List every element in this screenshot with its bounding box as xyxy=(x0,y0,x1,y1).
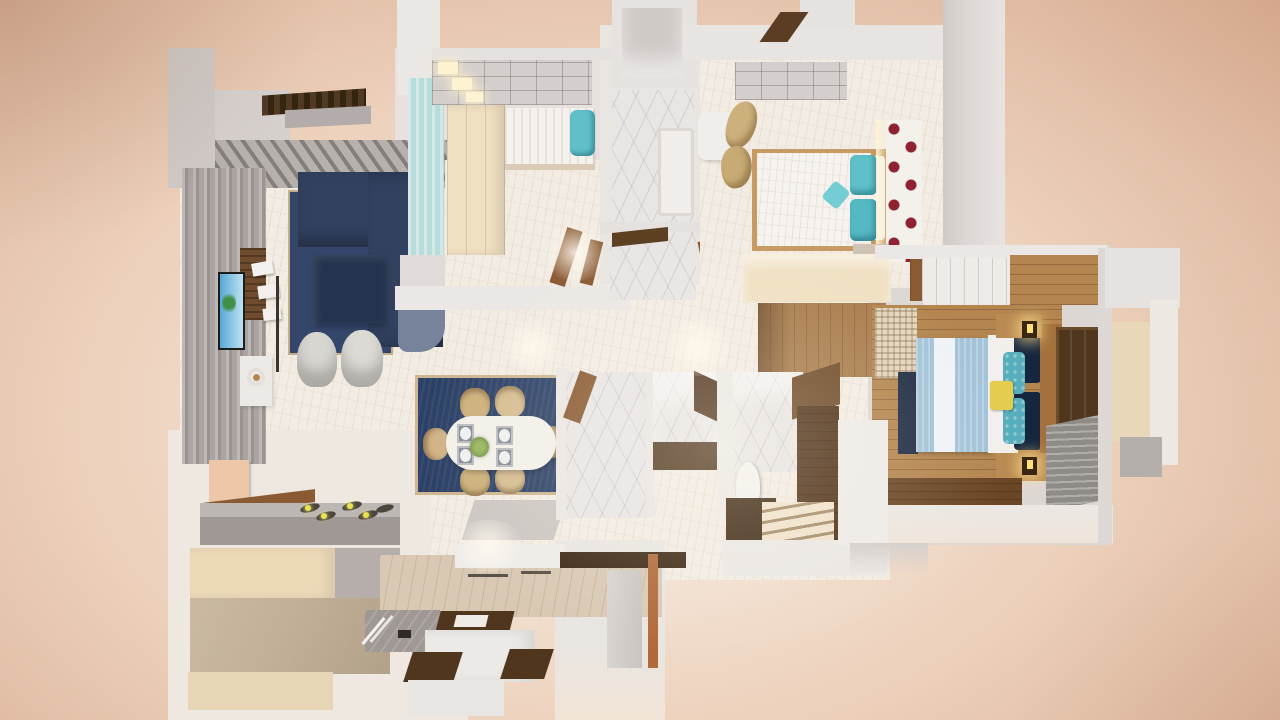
plate xyxy=(460,449,471,462)
orange-door-frame xyxy=(648,554,658,668)
plate xyxy=(499,451,510,464)
top-center-niche xyxy=(622,8,682,78)
bedroom-double-top-wall xyxy=(683,25,945,60)
gray-floor-wedge xyxy=(850,543,928,575)
teal-pillow xyxy=(850,155,877,195)
aqua-accent-wall xyxy=(408,78,444,258)
yellow-pillow xyxy=(990,381,1013,410)
bed-frame-edge xyxy=(505,164,595,170)
plate xyxy=(460,427,471,440)
burner-flame xyxy=(305,505,311,511)
cream-wardrobe xyxy=(743,254,891,302)
burner-flame xyxy=(321,513,327,519)
walnut-stool xyxy=(500,649,554,679)
sofa-ottoman xyxy=(313,255,383,323)
cream-wardrobe xyxy=(447,105,505,255)
centerpiece-plant xyxy=(470,437,489,457)
recessed-light xyxy=(438,62,458,74)
master-closet-floor xyxy=(1010,255,1105,305)
master-floor-dark-band xyxy=(870,478,1022,508)
tv-screen xyxy=(220,274,243,348)
polka-dot-accent-wall xyxy=(886,120,922,262)
tv-tree-image xyxy=(222,292,236,314)
tv xyxy=(218,272,245,350)
burner-flame xyxy=(363,512,369,518)
stairs xyxy=(762,502,834,542)
accent-chair xyxy=(341,330,383,387)
ceiling-light-pool xyxy=(540,225,610,281)
ceiling-light-pool xyxy=(500,322,564,372)
cream-plinth xyxy=(188,672,333,710)
woven-sliding-door xyxy=(875,308,917,378)
burner-flame xyxy=(347,503,353,509)
teal-pillow xyxy=(570,110,595,156)
entry-wall xyxy=(607,570,642,668)
hob-counter-front xyxy=(200,517,400,545)
island-top-gap xyxy=(454,615,489,627)
recessed-light xyxy=(466,92,483,102)
master-closet-front xyxy=(922,258,1010,305)
decor-bowl-center xyxy=(253,374,260,381)
recessed-light xyxy=(452,78,472,90)
accent-chair xyxy=(297,332,337,387)
stairs-right-wall xyxy=(838,420,888,546)
walnut-cabinet xyxy=(653,442,717,470)
cabinet-cream xyxy=(190,548,335,598)
walnut-shelf-bar xyxy=(560,552,686,568)
nightstand xyxy=(996,453,1046,481)
bedside-lamp xyxy=(1022,321,1037,338)
navy-bench xyxy=(898,372,918,454)
duvet-white-stripe xyxy=(934,338,955,452)
walnut-stool xyxy=(403,652,463,682)
floor-dash xyxy=(468,574,508,577)
floor-lamp-pole xyxy=(276,276,279,372)
ceiling-light-pool xyxy=(448,520,528,572)
master-bottom-wall xyxy=(868,505,1113,543)
ceiling-light-pool xyxy=(660,318,736,376)
top-wall-fragment xyxy=(800,0,855,28)
hallway-wood-shadow xyxy=(758,303,792,377)
island-base xyxy=(408,680,504,716)
balcony-outer-wall xyxy=(168,48,215,188)
ceiling-grid xyxy=(735,62,847,100)
bedroom-single-bottom-wall xyxy=(395,286,630,310)
master-ne-wall xyxy=(1105,248,1180,308)
dining-chair xyxy=(460,466,490,496)
beige-wall-panel xyxy=(1112,322,1150,442)
tan-counter-slab xyxy=(190,598,390,674)
shower-tray xyxy=(658,128,694,216)
bedroom-single-top-wall xyxy=(432,48,624,60)
plate xyxy=(499,429,510,442)
floor-dash xyxy=(521,571,551,574)
balcony-ledge xyxy=(285,106,371,129)
right-niche xyxy=(1120,437,1162,477)
floorplan-render xyxy=(0,0,1280,720)
teal-pillow xyxy=(850,199,877,241)
bedroom-double-right-wall xyxy=(943,0,1005,268)
soap-box xyxy=(398,630,411,638)
bedside-lamp xyxy=(1022,457,1037,475)
dining-chair xyxy=(495,386,525,418)
gray-striped-rug xyxy=(1046,414,1104,512)
